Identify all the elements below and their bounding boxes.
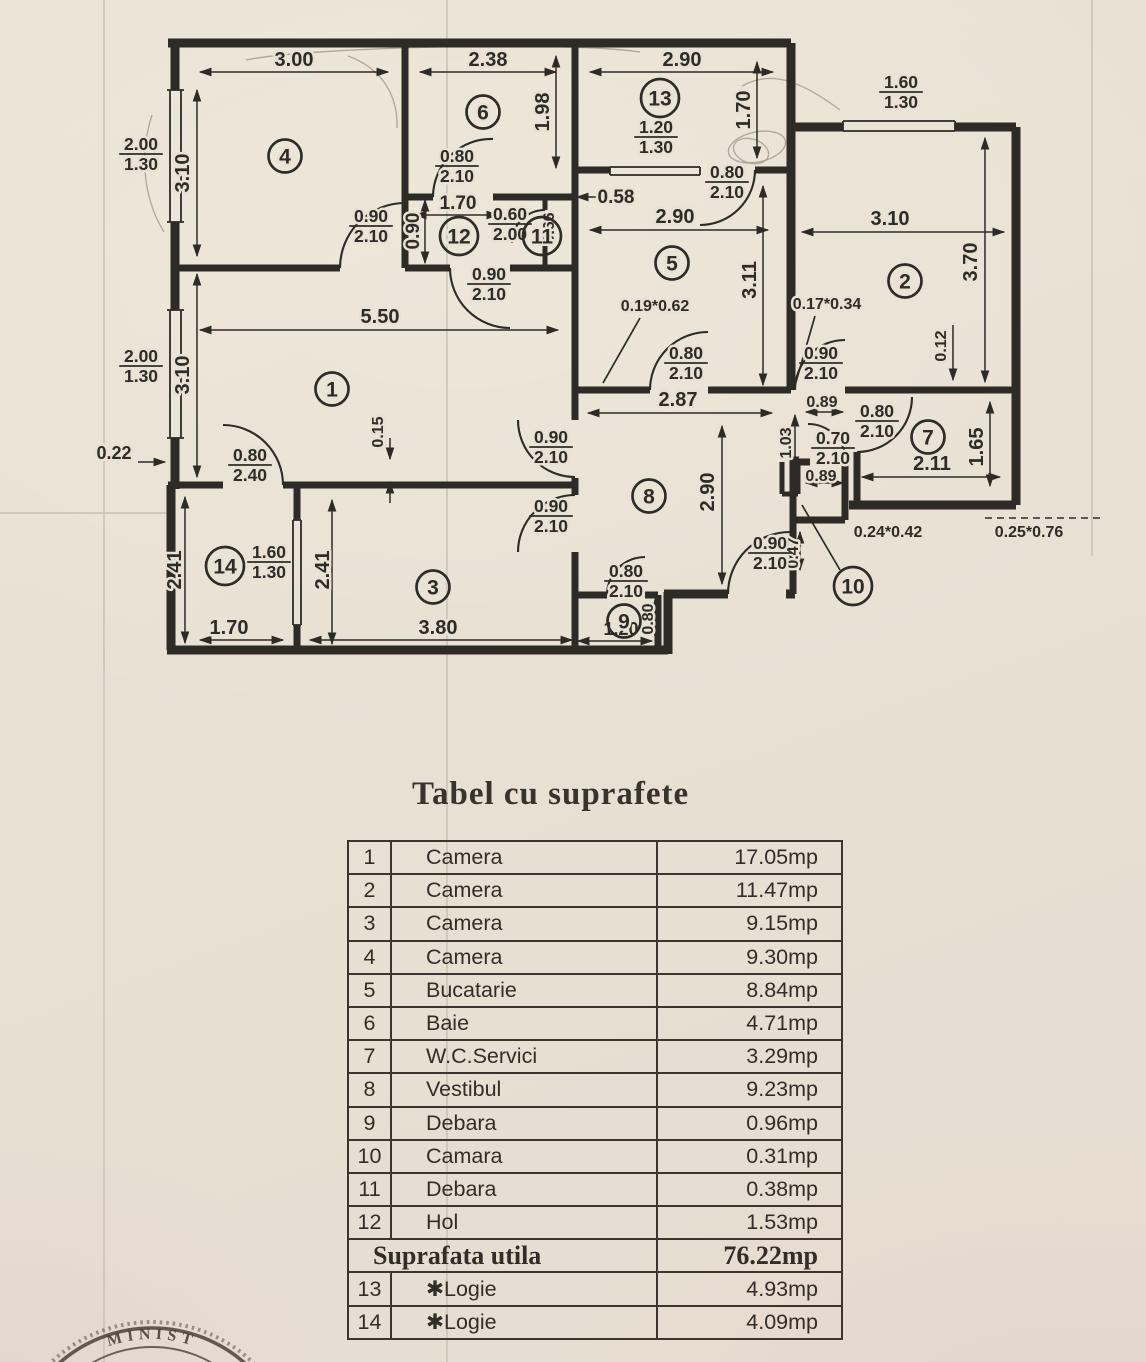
fraction-bottom: 2.10 [710,182,744,202]
fraction-top: 0.90 [534,427,568,447]
size-fraction-label: 0.802.10 [855,401,899,441]
fraction-top: 0.80 [710,162,744,182]
total-label: Suprafata utila [348,1239,657,1272]
size-fraction-label: 0.902.10 [799,343,843,383]
table-title: Tabel cu suprafete [412,776,732,813]
room-name: Hol [391,1206,657,1239]
round-stamp: MINIST [4,1320,300,1362]
room-number-text: 3 [427,577,439,600]
size-fraction-label: 0.802.10 [664,343,708,383]
room-number-text: 6 [477,102,489,125]
room-area-value: 11.47mp [657,874,842,907]
dimension-label: 0.15 [370,416,387,447]
fraction-top: 1.60 [884,72,918,92]
room-number-text: 14 [213,556,237,579]
dimension-label: 2.90 [697,473,719,512]
size-fraction-label: 0.802.40 [228,445,272,485]
fraction-bottom: 2.10 [534,516,568,536]
room-area-value: 4.09mp [657,1306,842,1339]
fraction-top: 0.70 [816,428,850,448]
fraction-top: 0.60 [493,204,527,224]
row-number: 4 [348,941,391,974]
fraction-bottom: 1.30 [124,366,158,386]
table-row: 6Baie4.71mp [348,1007,842,1040]
room-number-text: 11 [531,226,554,249]
fraction-bottom: 2.10 [534,447,568,467]
scanned-floor-plan-page: MINIST [0,0,1146,1362]
table-row: 4Camera9.30mp [348,941,842,974]
table-row: 9Debara0.96mp [348,1107,842,1140]
room-area-value: 8.84mp [657,974,842,1007]
room-number-text: 13 [648,88,671,111]
dimension-label: 2.41 [312,551,334,590]
fraction-top: 0.80 [440,146,474,166]
dimension-label: 0.80 [640,603,657,634]
room-name: Vestibul [391,1073,657,1106]
size-fraction-label: 1.201.30 [634,117,678,157]
dimension-label: 2.90 [656,206,695,228]
room-name: Camera [391,941,657,974]
table-row: 2Camera11.47mp [348,874,842,907]
dimension-label: 3.11 [739,261,761,299]
room-number-8: 8 [633,480,666,513]
room-number-3: 3 [417,571,450,604]
fraction-top: 0.90 [804,343,838,363]
row-number: 10 [348,1140,391,1173]
dimension-label: 0.58 [598,187,635,208]
dimension-label: 1.03 [778,427,795,458]
table-row: 10Camara0.31mp [348,1140,842,1173]
dimension-label: 3.10 [871,208,910,230]
fraction-top: 0.80 [233,445,267,465]
fraction-bottom: 2.10 [669,363,703,383]
fraction-top: 0.90 [472,264,506,284]
size-fraction-label: 0.602.00 [488,204,532,244]
plan-labels: 3.002.382.901.703.101.980.582.903.113.10… [96,49,1063,639]
room-area-value: 9.15mp [657,907,842,940]
room-number-text: 9 [618,611,630,634]
room-name: Bucatarie [391,974,657,1007]
room-area-value: 9.23mp [657,1073,842,1106]
size-fraction-label: 0.902.10 [529,496,573,536]
floor-plan-drawing: 3.002.382.901.703.101.980.582.903.113.10… [0,0,1146,740]
room-name: Camera [391,841,657,874]
room-number-10: 10 [834,567,872,605]
dimension-label: 0.25*0.76 [995,524,1064,541]
fraction-bottom: 2.10 [816,448,850,468]
row-number: 13 [348,1272,391,1305]
table-row: 13✱Logie4.93mp [348,1272,842,1305]
room-number-7: 7 [912,421,945,454]
room-number-2: 2 [889,265,922,298]
total-row: Suprafata utila76.22mp [348,1239,842,1272]
table-row: 1Camera17.05mp [348,841,842,874]
fraction-bottom: 1.30 [124,154,158,174]
dimension-label: 1.70 [440,193,477,214]
dimension-label: 3.10 [172,356,194,395]
dimension-label: 0.90 [403,213,424,250]
room-number-6: 6 [467,96,500,129]
dimension-label: 1.65 [966,428,988,467]
table-row: 11Debara0.38mp [348,1173,842,1206]
fraction-top: 1.20 [639,117,673,137]
room-area-value: 4.71mp [657,1007,842,1040]
room-area-value: 17.05mp [657,841,842,874]
dimension-label: 0.89 [806,394,837,411]
fraction-top: 2.00 [124,346,158,366]
room-area-value: 0.31mp [657,1140,842,1173]
room-name: Debara [391,1173,657,1206]
table-row: 14✱Logie4.09mp [348,1306,842,1339]
size-fraction-label: 0.902.10 [467,264,511,304]
row-number: 12 [348,1206,391,1239]
fraction-bottom: 2.10 [804,363,838,383]
table-row: 3Camera9.15mp [348,907,842,940]
room-number-text: 2 [899,271,911,294]
room-name: Camera [391,907,657,940]
table-row: 12Hol1.53mp [348,1206,842,1239]
surface-areas-table: 1Camera17.05mp2Camera11.47mp3Camera9.15m… [347,840,843,1340]
dimension-label: 3.80 [419,617,458,639]
fraction-bottom: 2.10 [609,581,643,601]
dimension-label: 2.38 [469,49,508,71]
dimension-label: 2.87 [659,389,698,411]
walls [167,43,1016,654]
fraction-top: 0.90 [534,496,568,516]
fraction-bottom: 1.30 [639,137,673,157]
size-fraction-label: 2.001.30 [119,134,163,174]
room-name: Camera [391,874,657,907]
room-number-text: 5 [666,253,678,276]
room-number-1: 1 [316,373,349,406]
fraction-bottom: 2.10 [354,226,388,246]
table-row: 7W.C.Servici3.29mp [348,1040,842,1073]
dimension-label: 0.19*0.62 [621,298,690,315]
room-area-value: 9.30mp [657,941,842,974]
fraction-top: 1.60 [252,542,286,562]
dimension-label: 1.98 [532,93,554,132]
room-number-text: 10 [841,576,864,599]
dimension-label: 0.89 [805,468,836,485]
row-number: 8 [348,1073,391,1106]
room-area-value: 1.53mp [657,1206,842,1239]
row-number: 11 [348,1173,391,1206]
fraction-top: 0.80 [669,343,703,363]
room-number-text: 8 [643,486,655,509]
size-fraction-label: 0.802.10 [435,146,479,186]
room-number-text: 7 [922,427,934,450]
room-number-4: 4 [269,140,302,173]
row-number: 3 [348,907,391,940]
fraction-top: 0.90 [753,533,787,553]
fraction-bottom: 2.10 [753,553,787,573]
fraction-bottom: 2.40 [233,465,267,485]
dimension-label: 5.50 [361,306,400,328]
fraction-top: 0.80 [609,561,643,581]
room-number-13: 13 [641,79,679,117]
total-area-value: 76.22mp [657,1239,842,1272]
size-fraction-label: 0.902.10 [748,533,792,573]
dimension-label: 2.90 [663,49,702,71]
fraction-top: 0.80 [860,401,894,421]
dimension-label: 2.41 [164,551,186,590]
row-number: 5 [348,974,391,1007]
dimension-label: 3.70 [960,243,982,282]
dimension-label: 0.12 [933,330,950,361]
fraction-bottom: 2.10 [472,284,506,304]
dimension-label: 1.70 [733,91,755,130]
size-fraction-label: 0.802.10 [604,561,648,601]
room-area-value: 3.29mp [657,1040,842,1073]
fraction-bottom: 2.10 [440,166,474,186]
room-area-value: 0.38mp [657,1173,842,1206]
size-fraction-label: 2.001.30 [119,346,163,386]
size-fraction-label: 1.601.30 [247,542,291,582]
row-number: 14 [348,1306,391,1339]
room-name: ✱Logie [391,1306,657,1339]
room-name: Debara [391,1107,657,1140]
dimension-label: 3.00 [275,49,314,71]
row-number: 1 [348,841,391,874]
room-name: W.C.Servici [391,1040,657,1073]
table-row: 5Bucatarie8.84mp [348,974,842,1007]
dimension-label: 0.22 [96,443,131,463]
row-number: 2 [348,874,391,907]
room-name: Baie [391,1007,657,1040]
size-fraction-label: 0.702.10 [811,428,855,468]
row-number: 7 [348,1040,391,1073]
table-row: 8Vestibul9.23mp [348,1073,842,1106]
room-number-12: 12 [440,217,478,255]
room-number-text: 4 [279,146,291,169]
dimension-label: 3.10 [172,154,194,193]
room-number-text: 12 [447,226,470,249]
fraction-top: 2.00 [124,134,158,154]
fraction-bottom: 1.30 [252,562,286,582]
room-name: ✱Logie [391,1272,657,1305]
dimension-label: 0.24*0.42 [854,524,923,541]
dimension-label: 0.17*0.34 [793,296,862,313]
dimension-label: 2.11 [913,453,951,475]
room-name: Camara [391,1140,657,1173]
room-number-14: 14 [206,547,244,585]
fraction-top: 0.90 [354,206,388,226]
dimension-label: 1.70 [210,617,249,639]
fraction-bottom: 2.10 [860,421,894,441]
size-fraction-label: 0.902.10 [529,427,573,467]
size-fraction-label: 0.902.10 [349,206,393,246]
room-number-text: 1 [326,379,338,402]
room-area-value: 4.93mp [657,1272,842,1305]
row-number: 9 [348,1107,391,1140]
size-fraction-label: 1.601.30 [879,72,923,112]
row-number: 6 [348,1007,391,1040]
size-fraction-label: 0.802.10 [705,162,749,202]
room-number-5: 5 [656,247,689,280]
fraction-bottom: 1.30 [884,92,918,112]
room-area-value: 0.96mp [657,1107,842,1140]
